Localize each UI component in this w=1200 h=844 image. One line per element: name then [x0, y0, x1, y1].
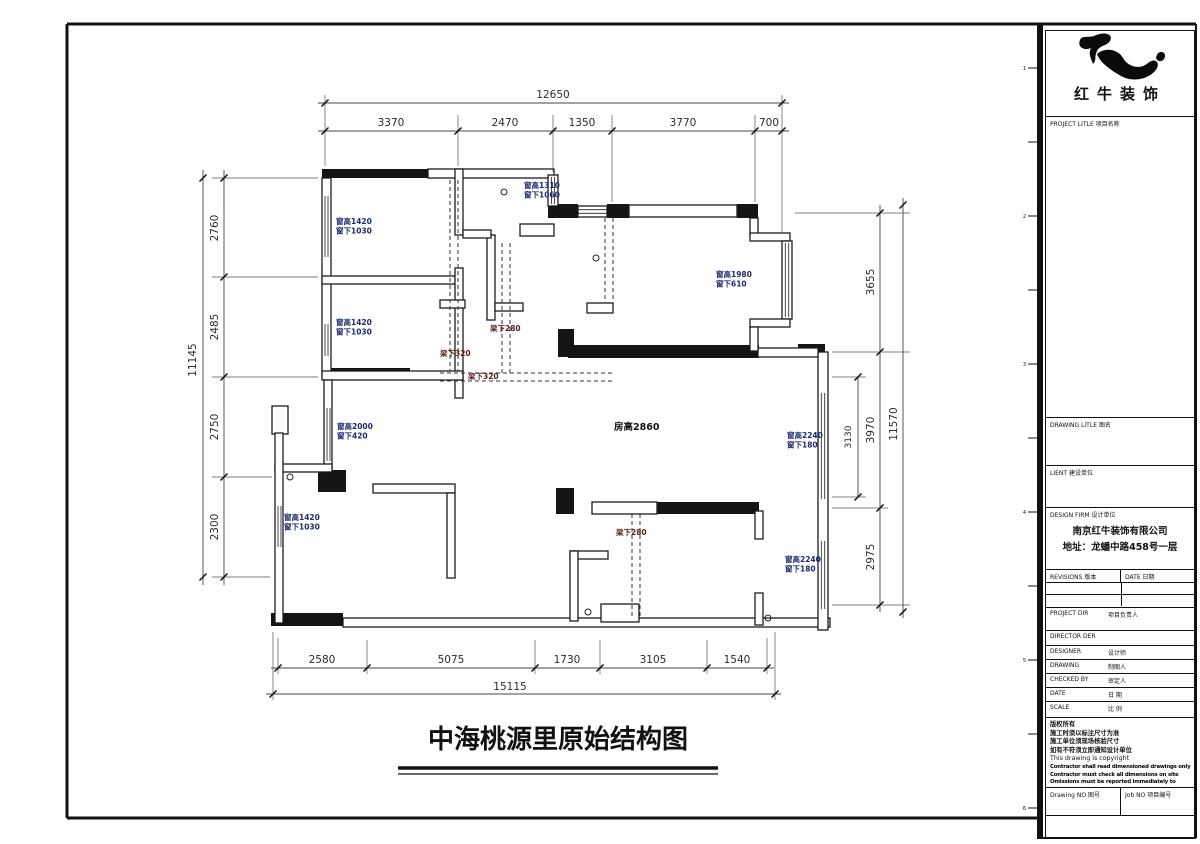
- titleblock-drawing-box: DRAWING制图人: [1045, 659, 1195, 674]
- note-line-bold: Contractor must check all dimensions on …: [1046, 772, 1194, 780]
- window-label: 窗高2240: [785, 554, 821, 564]
- tick-number: 5: [1023, 658, 1026, 664]
- titleblock-notes-box: 版权所有 施工时须以标注尺寸为准 施工单位须现场核验尺寸 如有不符须立即通知设计…: [1045, 717, 1195, 788]
- dim-right-seg: 2975: [865, 544, 877, 571]
- note-line: This drawing is copyright: [1046, 755, 1194, 764]
- dim-left-seg: 2750: [209, 414, 221, 441]
- dim-top-seg: 1350: [569, 117, 596, 129]
- dim-right-seg: 3655: [865, 269, 877, 296]
- revisions-date-label: DATE 日期: [1121, 570, 1155, 582]
- beam-label: 梁下280: [615, 527, 647, 537]
- client-label: LIENT 建设单位: [1046, 466, 1194, 477]
- titleblock-checked-box: CHECKED BY审定人: [1045, 673, 1195, 688]
- tick-number: 3: [1023, 362, 1026, 368]
- window-label: 窗高1420: [336, 317, 372, 327]
- note-line-bold: Contractor shall read dimensioned drawin…: [1046, 764, 1194, 772]
- copyright-note: 版权所有: [1046, 721, 1194, 730]
- dim-left-seg: 2300: [209, 514, 221, 541]
- dim-top-seg: 3370: [378, 117, 405, 129]
- design-firm-address: 地址：龙蟠中路458号一层: [1061, 539, 1179, 553]
- dim-bottom-seg: 1540: [724, 654, 751, 666]
- tick-number: 2: [1023, 214, 1026, 220]
- titleblock-designer-box: DESIGNER设计师: [1045, 645, 1195, 660]
- drain-symbols: [287, 189, 771, 621]
- window-label: 窗高1980: [716, 269, 752, 279]
- window-label: 窗下1030: [284, 522, 320, 532]
- titleblock-director-box: DIRECTOR DER: [1045, 630, 1195, 646]
- dim-top-total: 12650: [536, 89, 569, 101]
- window-label: 窗高2000: [337, 421, 373, 431]
- tick-number: 6: [1023, 806, 1026, 812]
- dim-left-seg: 2760: [209, 215, 221, 242]
- date-label: DATE: [1050, 690, 1108, 699]
- dimension-bottom: 2580 5075 1730 3105 1540 15115: [266, 632, 781, 700]
- beam-dashed-lines: [440, 180, 640, 618]
- designer-label: DESIGNER: [1050, 648, 1108, 657]
- window-label: 窗下180: [785, 564, 816, 574]
- window-label: 窗下1060: [524, 190, 560, 200]
- window-label: 窗下180: [787, 440, 818, 450]
- dim-right-total: 11570: [888, 407, 900, 440]
- titleblock-drawing-title-box: DRAWING LITLE 图名: [1045, 417, 1195, 466]
- job-no-label: Job NO 项目编号: [1121, 788, 1171, 815]
- design-firm-name: 南京红牛装饰有限公司: [1046, 523, 1194, 537]
- tick-number: 4: [1023, 510, 1026, 516]
- sheet-title: 中海桃源里原始结构图: [428, 725, 688, 755]
- floor-plan-walls: [272, 169, 830, 630]
- drawing-no-label: Drawing NO 图号: [1046, 788, 1121, 815]
- dim-bottom-seg: 2580: [309, 654, 336, 666]
- project-dir-label: PROJECT DIR: [1050, 610, 1108, 619]
- window-label: 窗下610: [716, 279, 747, 289]
- note-line: 施工单位须现场核验尺寸: [1046, 738, 1194, 747]
- window-label: 窗下1030: [336, 327, 372, 337]
- scale-label: SCALE: [1050, 704, 1108, 713]
- room-height-label: 房高2860: [614, 421, 660, 433]
- titleblock-client-box: LIENT 建设单位: [1045, 465, 1195, 508]
- window-label: 窗下420: [337, 431, 368, 441]
- windows: [278, 177, 825, 609]
- titleblock-scale-box: SCALE比 例: [1045, 701, 1195, 718]
- beam-label: 梁下320: [439, 348, 471, 358]
- cad-sheet: { "title": {"text": "中海桃源里原始结构图"}, "fram…: [0, 0, 1200, 844]
- revision-row: [1046, 594, 1194, 606]
- brand-name: 红牛装饰: [1074, 83, 1166, 104]
- window-label: 窗高1420: [284, 512, 320, 522]
- revision-row: [1046, 582, 1194, 594]
- titleblock-logo-box: 红牛装饰: [1045, 30, 1195, 117]
- tick-number: 1: [1023, 66, 1026, 72]
- titleblock-project-box: PROJECT LITLE 项目名称: [1045, 116, 1195, 418]
- window-label: 窗高1420: [336, 216, 372, 226]
- beam-label: 梁下320: [467, 371, 499, 381]
- dim-left-seg: 2485: [209, 314, 221, 341]
- frame-tick-numbers: 1 2 3 4 5 6: [1023, 66, 1026, 812]
- drawing-label: DRAWING: [1050, 662, 1108, 671]
- titleblock-number-box: Drawing NO 图号 Job NO 项目编号: [1045, 787, 1195, 816]
- dim-top-seg: 2470: [492, 117, 519, 129]
- dim-bottom-seg: 5075: [438, 654, 465, 666]
- drawing-title-label: DRAWING LITLE 图名: [1046, 418, 1194, 429]
- shear-walls: [271, 169, 825, 626]
- checked-by-label: CHECKED BY: [1050, 676, 1108, 685]
- dim-right-seg: 3970: [865, 417, 877, 444]
- dim-bottom-total: 15115: [493, 681, 526, 693]
- note-line: 如有不符须立即通知设计单位: [1046, 747, 1194, 756]
- titleblock-empty-box: [1045, 815, 1195, 838]
- titleblock-project-dir-box: PROJECT DIR项目负责人: [1045, 607, 1195, 631]
- design-firm-label: DESIGN FIRM 设计单位: [1046, 508, 1194, 519]
- titleblock-design-firm-box: DESIGN FIRM 设计单位 南京红牛装饰有限公司 地址：龙蟠中路458号一…: [1045, 507, 1195, 570]
- dim-top-seg: 700: [759, 117, 779, 129]
- window-label: 窗高1310: [524, 180, 560, 190]
- project-title-label: PROJECT LITLE 项目名称: [1046, 117, 1194, 128]
- titleblock-date-box: DATE日 期: [1045, 687, 1195, 702]
- note-line: 施工时须以标注尺寸为准: [1046, 730, 1194, 739]
- sheet-title-group: 中海桃源里原始结构图: [398, 725, 718, 774]
- dim-left-total: 11145: [187, 343, 199, 376]
- floor-plan-canvas: 1 2 3 4 5 6: [0, 0, 1200, 844]
- bull-logo-icon: [1068, 31, 1172, 81]
- window-label: 窗高2240: [787, 430, 823, 440]
- revisions-label: REVISIONS 版本: [1046, 570, 1121, 582]
- director-label: DIRECTOR DER: [1050, 633, 1108, 640]
- window-label: 窗下1030: [336, 226, 372, 236]
- titleblock-revisions-box: REVISIONS 版本 DATE 日期: [1045, 569, 1195, 608]
- dim-right-inner: 3130: [844, 425, 854, 448]
- dim-bottom-seg: 3105: [640, 654, 667, 666]
- beam-label: 梁下280: [489, 323, 521, 333]
- dim-bottom-seg: 1730: [554, 654, 581, 666]
- dim-top-seg: 3770: [670, 117, 697, 129]
